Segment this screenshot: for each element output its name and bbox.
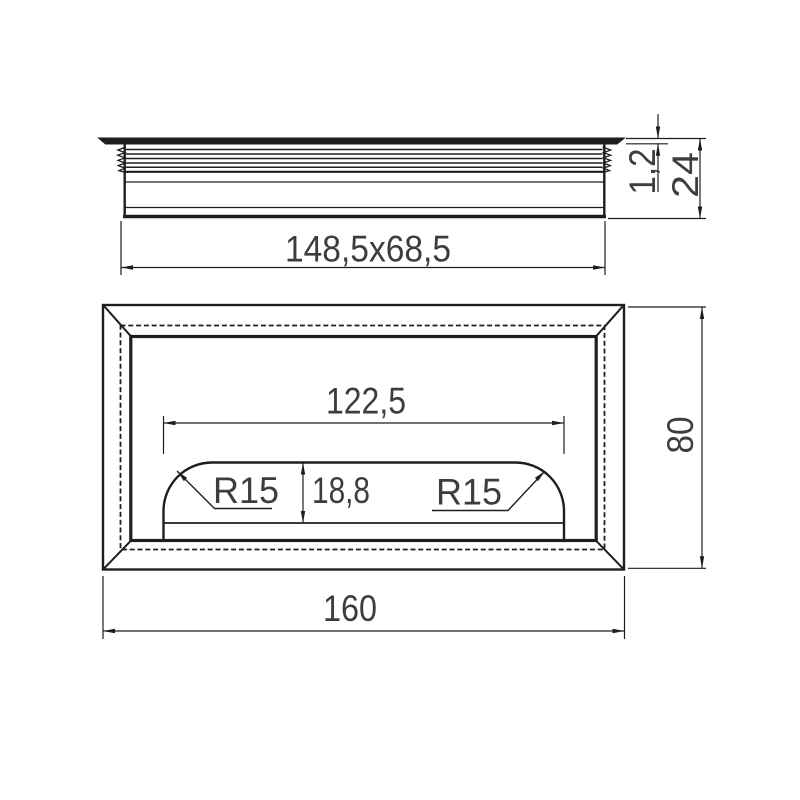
hidden-cutout-outline (121, 326, 605, 550)
dim-flange-thickness-label: 1,2 (622, 149, 663, 195)
dim-total-height-label: 24 (665, 152, 706, 198)
arrowhead (164, 421, 176, 425)
dim-inner-width-label: 122,5 (326, 381, 406, 422)
side-view (99, 138, 625, 217)
grommet-dimension-drawing: 148,5x68,5 1,2 24 (0, 0, 800, 800)
technical-drawing-page: 148,5x68,5 1,2 24 (0, 0, 800, 800)
flange-profile (99, 138, 625, 144)
dim-inner-height-label: 18,8 (312, 470, 370, 511)
plan-view (103, 305, 624, 570)
dim-overall-width-label: 160 (323, 588, 377, 629)
arrowhead (593, 265, 605, 269)
arrowhead (301, 463, 305, 475)
dim-inner-height (301, 463, 305, 524)
arrowhead (613, 629, 625, 633)
radius-left-label: R15 (213, 470, 279, 511)
arrowhead (698, 139, 702, 151)
arrowhead (656, 127, 660, 139)
arrowhead (121, 265, 133, 269)
arrowhead (301, 511, 305, 523)
radius-right-label: R15 (436, 472, 502, 513)
dim-inner-width (164, 416, 565, 454)
collar-rib-lines (126, 150, 603, 168)
outer-frame (103, 305, 624, 570)
corner-bevel-lines (104, 306, 623, 568)
arrowhead (103, 629, 115, 633)
arrowhead (700, 307, 704, 319)
arrowhead (700, 556, 704, 568)
arrowhead (698, 207, 702, 219)
arrowhead (552, 421, 564, 425)
dim-overall-height-label: 80 (660, 417, 701, 454)
dim-cutout-size-label: 148,5x68,5 (285, 229, 451, 270)
